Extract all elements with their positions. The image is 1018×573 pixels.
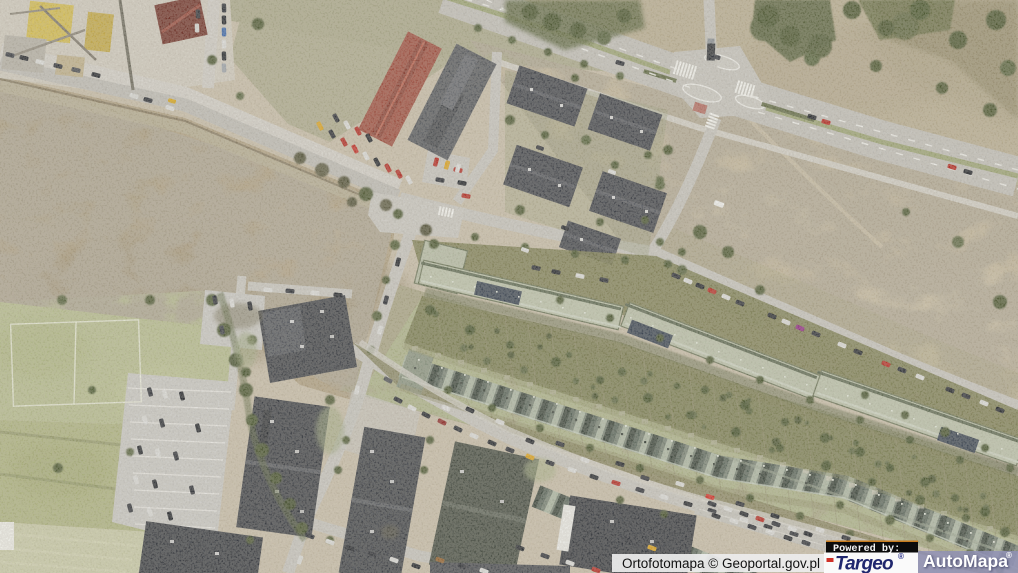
svg-text:AutoMapa: AutoMapa <box>923 551 1008 571</box>
svg-text:®: ® <box>1006 551 1012 560</box>
svg-text:®: ® <box>898 552 904 561</box>
svg-text:Targeo: Targeo <box>835 554 893 573</box>
svg-text:Ortofotomapa © Geoportal.gov.p: Ortofotomapa © Geoportal.gov.pl <box>622 556 820 571</box>
